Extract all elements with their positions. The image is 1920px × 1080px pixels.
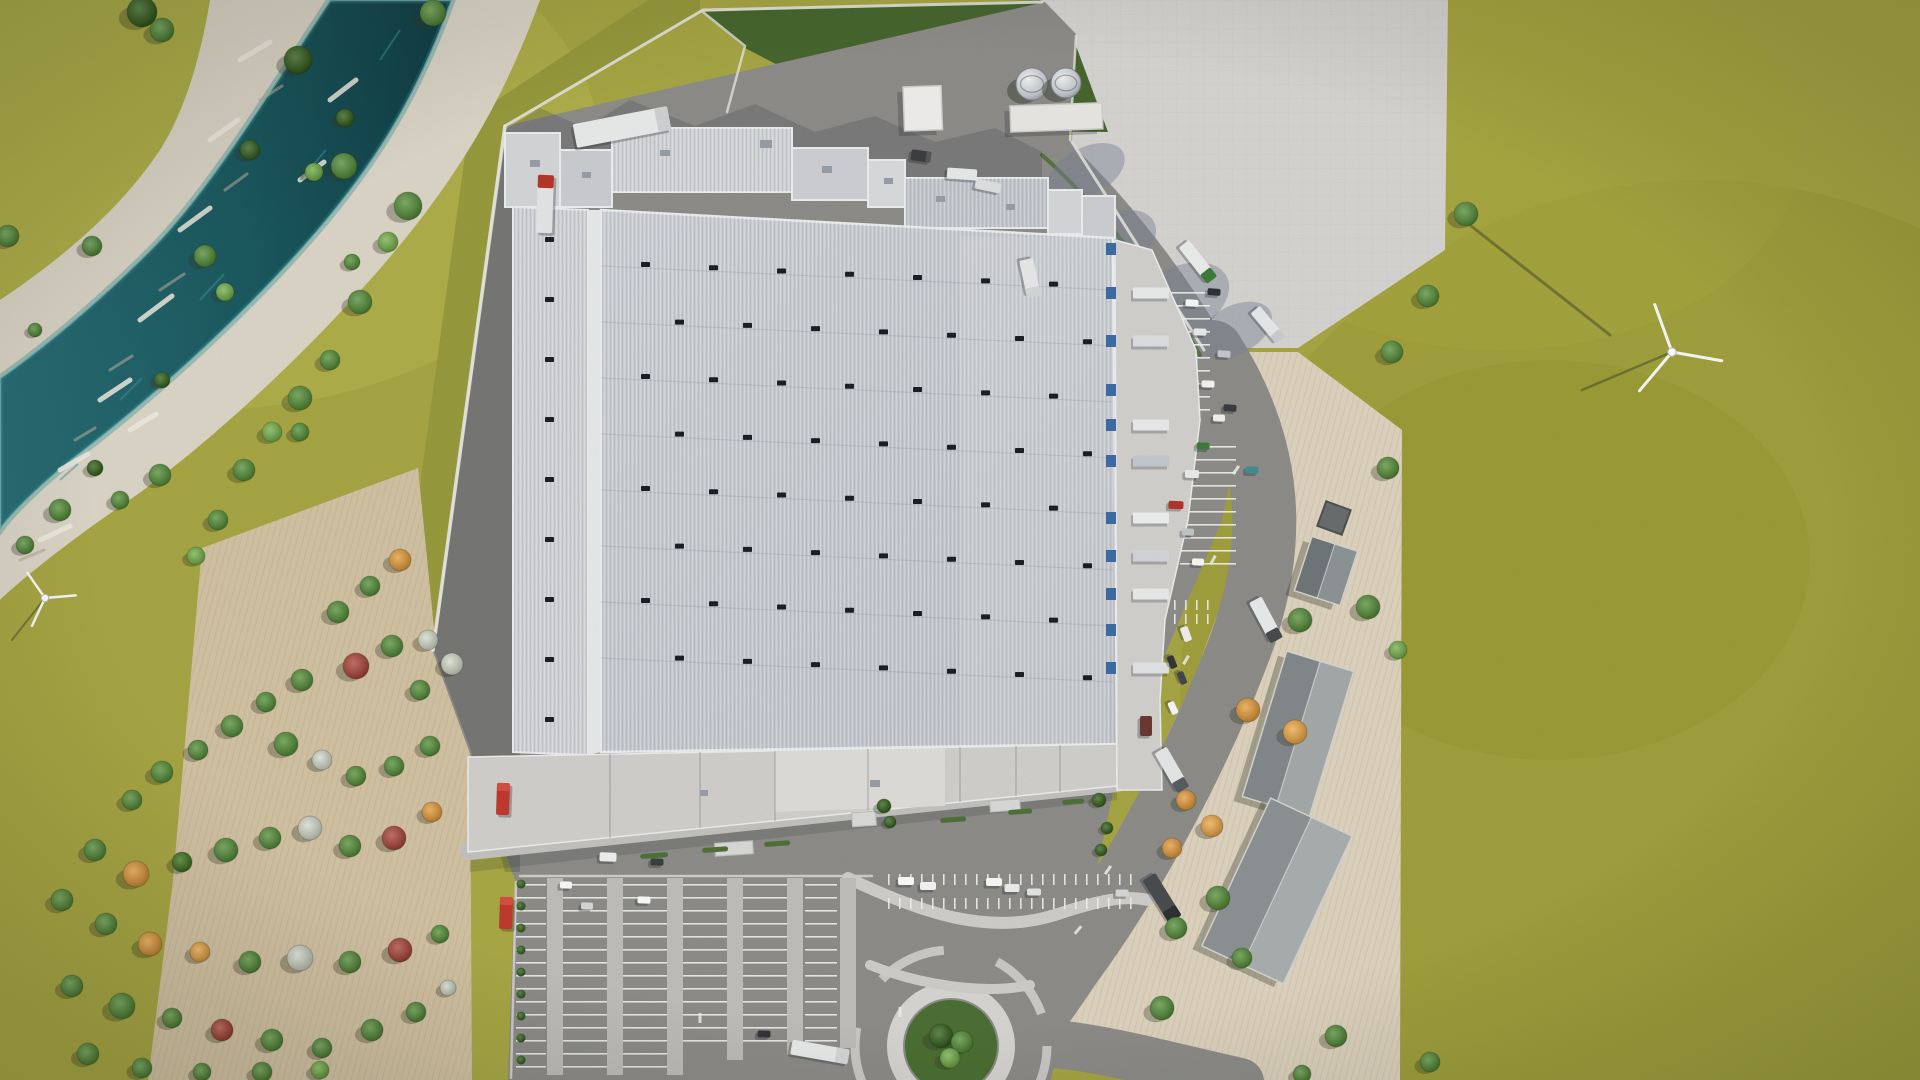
vignette: [0, 0, 1920, 1080]
scene-canvas: [0, 0, 1920, 1080]
atmosphere-layer: [0, 0, 1920, 1080]
aerial-site-render: [0, 0, 1920, 1080]
